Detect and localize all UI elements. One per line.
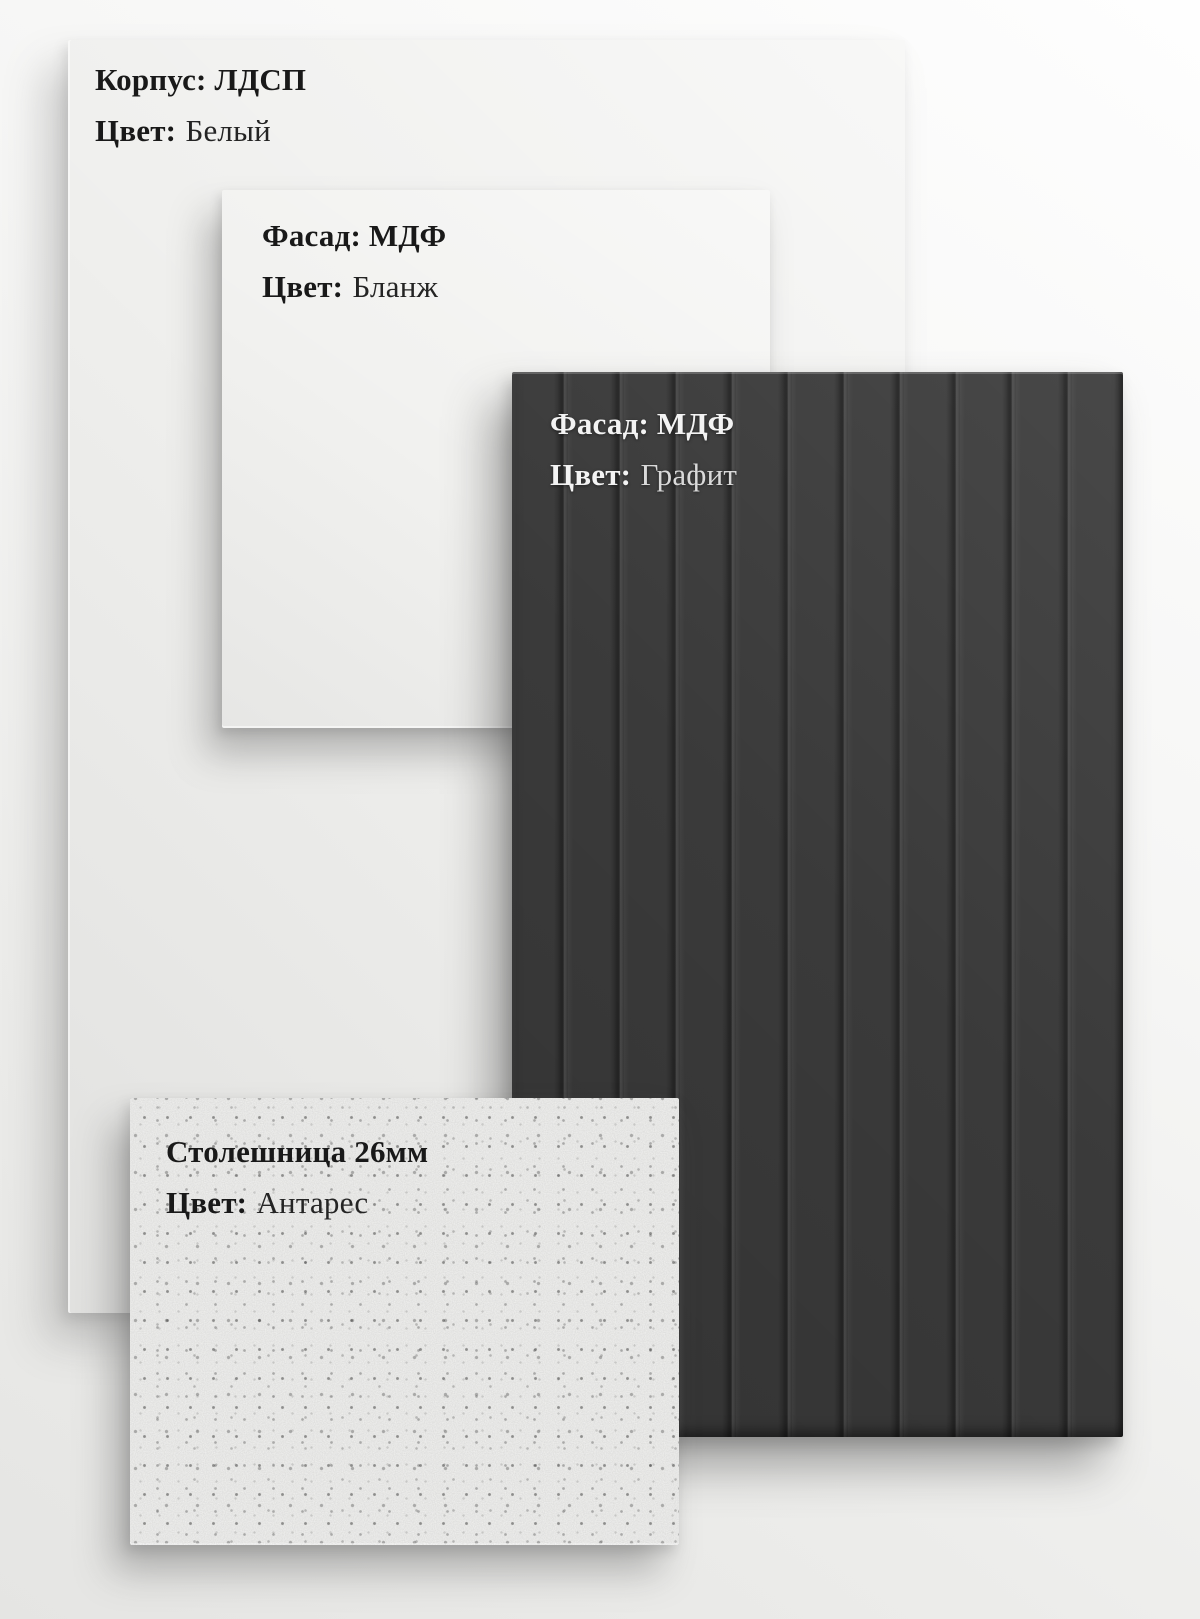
stoleshnitsa-color-value: Антарес xyxy=(256,1185,368,1220)
stoleshnitsa-material-line: Столешница 26мм xyxy=(166,1126,428,1177)
korpus-material-line: Корпус: ЛДСП xyxy=(95,54,306,105)
korpus-color-key: Цвет: xyxy=(95,113,176,148)
grafit-color-key: Цвет: xyxy=(550,457,631,492)
blanzh-color-line: Цвет:Бланж xyxy=(262,261,446,312)
stoleshnitsa-color-key: Цвет: xyxy=(166,1185,247,1220)
stoleshnitsa-label: Столешница 26мм Цвет:Антарес xyxy=(166,1126,428,1228)
panel-stoleshnitsa: Столешница 26мм Цвет:Антарес xyxy=(130,1098,679,1545)
korpus-color-value: Белый xyxy=(185,113,270,148)
material-samples-scene: Корпус: ЛДСП Цвет:Белый Фасад: МДФ Цвет:… xyxy=(0,0,1200,1619)
blanzh-material-line: Фасад: МДФ xyxy=(262,210,446,261)
korpus-label: Корпус: ЛДСП Цвет:Белый xyxy=(95,54,306,156)
blanzh-color-key: Цвет: xyxy=(262,269,343,304)
grafit-label: Фасад: МДФ Цвет:Графит xyxy=(550,398,737,500)
grafit-material-line: Фасад: МДФ xyxy=(550,398,737,449)
blanzh-label: Фасад: МДФ Цвет:Бланж xyxy=(262,210,446,312)
stoleshnitsa-color-line: Цвет:Антарес xyxy=(166,1177,428,1228)
blanzh-color-value: Бланж xyxy=(352,269,438,304)
grafit-color-value: Графит xyxy=(640,457,737,492)
grafit-color-line: Цвет:Графит xyxy=(550,449,737,500)
korpus-color-line: Цвет:Белый xyxy=(95,105,306,156)
